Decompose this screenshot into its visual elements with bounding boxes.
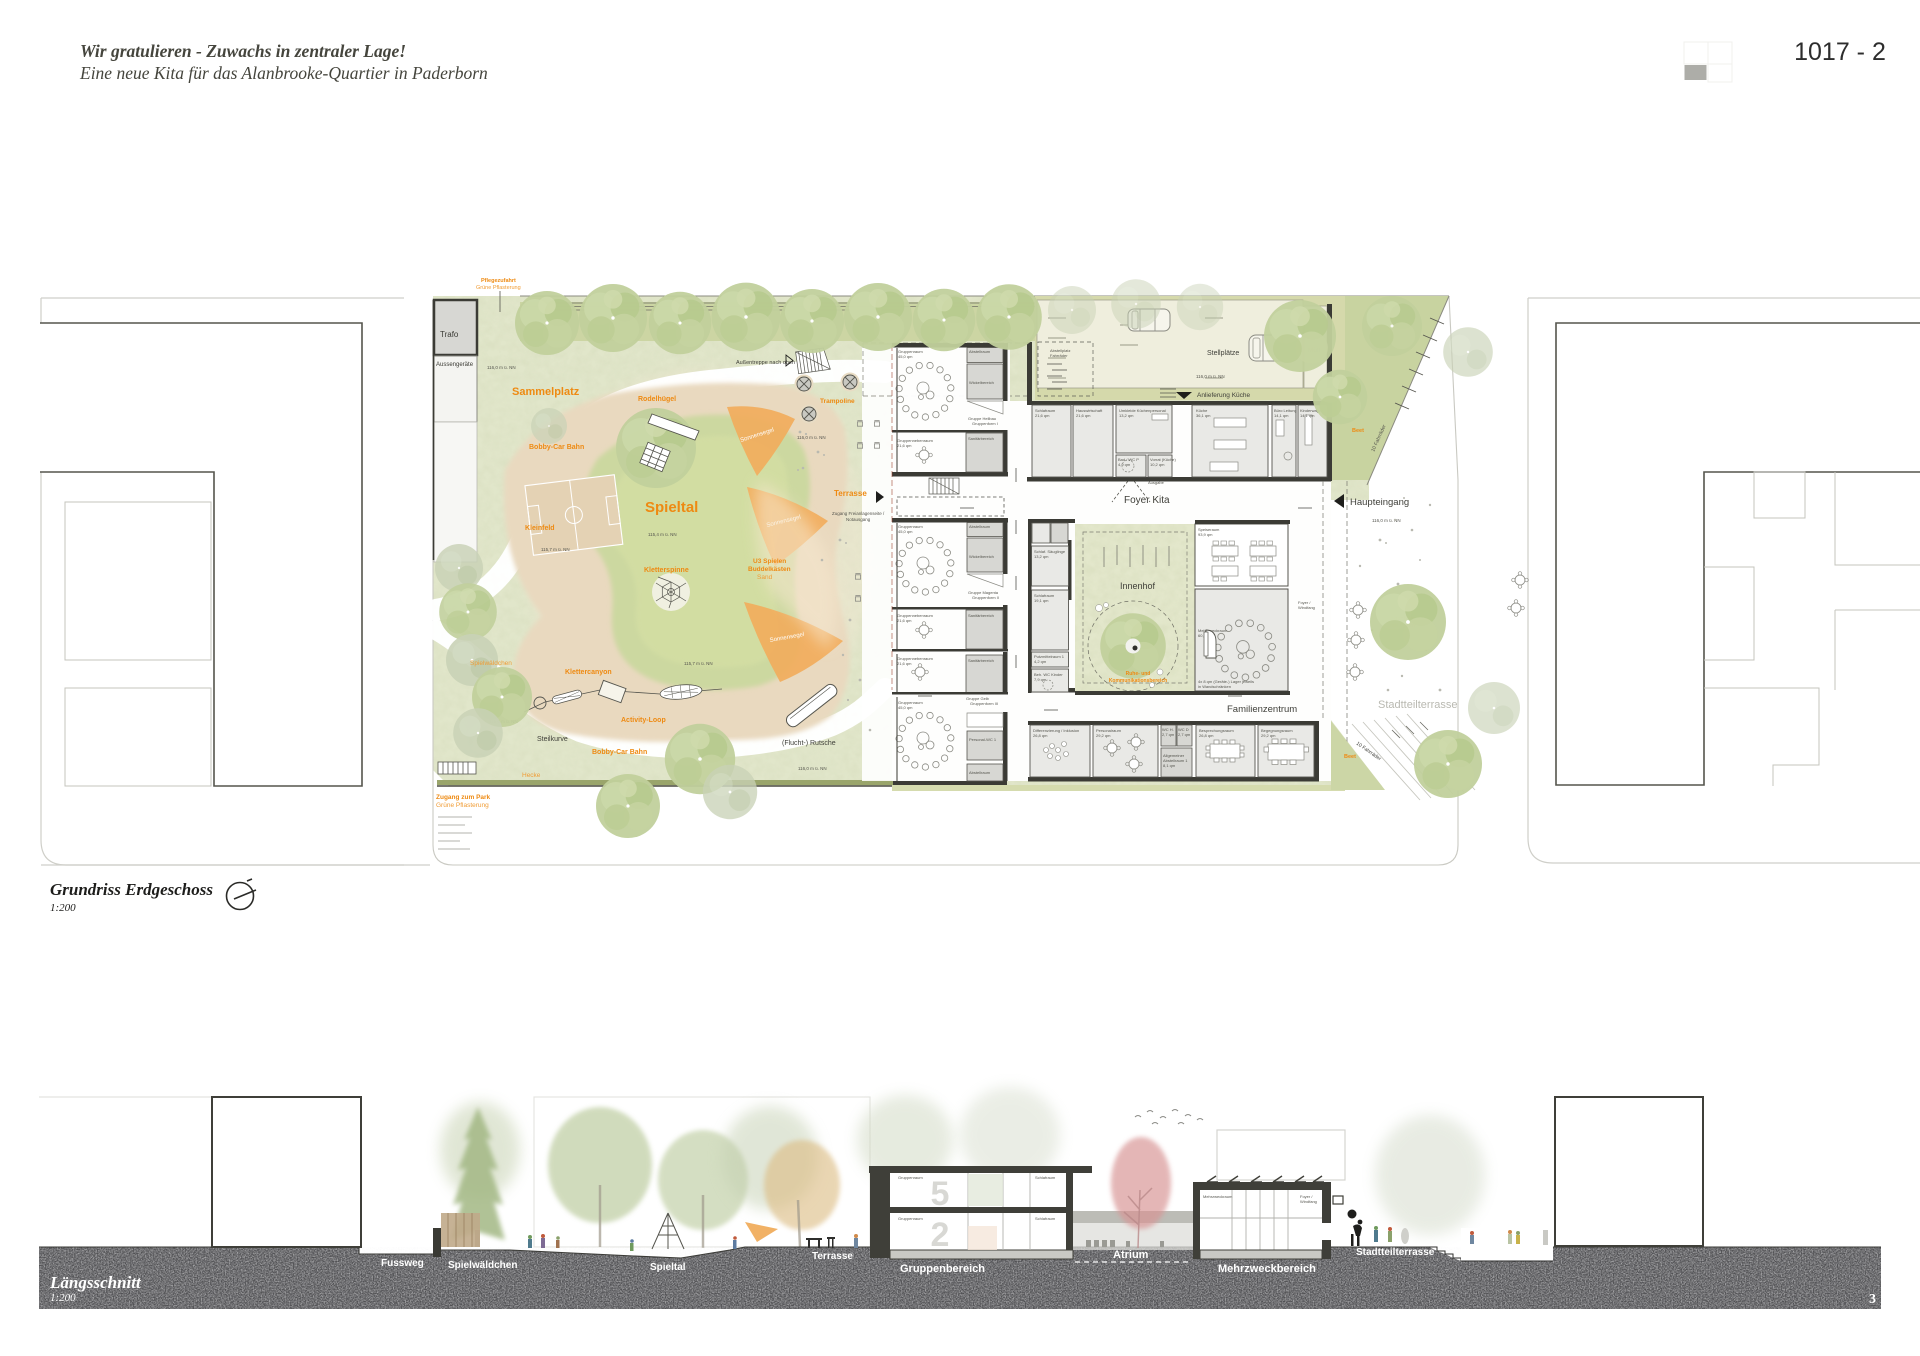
svg-text:Stadtteilterrasse: Stadtteilterrasse xyxy=(1378,699,1457,711)
svg-text:Aussengeräte: Aussengeräte xyxy=(436,362,474,368)
svg-text:Spielwäldchen: Spielwäldchen xyxy=(448,1260,517,1271)
svg-text:Abstellraum: Abstellraum xyxy=(969,524,991,529)
svg-text:Spielwäldchen: Spielwäldchen xyxy=(470,660,512,667)
svg-text:26,8 qm: 26,8 qm xyxy=(1033,733,1048,738)
svg-text:Gruppenform III: Gruppenform III xyxy=(970,701,998,706)
svg-text:21,6 qm: 21,6 qm xyxy=(897,661,912,666)
svg-text:4,2 qm: 4,2 qm xyxy=(1034,659,1047,664)
svg-text:Sanitärbereich: Sanitärbereich xyxy=(968,658,994,663)
svg-text:Steilkurve: Steilkurve xyxy=(537,736,568,743)
svg-text:Gruppenbereich: Gruppenbereich xyxy=(900,1263,985,1275)
svg-text:Kommunikationsbereich: Kommunikationsbereich xyxy=(1109,678,1167,684)
svg-text:21,6 qm: 21,6 qm xyxy=(1076,413,1091,418)
svg-text:Klettercanyon: Klettercanyon xyxy=(565,669,612,676)
svg-text:Zugang Freianlagenseite /: Zugang Freianlagenseite / xyxy=(832,511,885,516)
svg-text:Haupteingang: Haupteingang xyxy=(1350,497,1409,508)
svg-text:45,0 qm: 45,0 qm xyxy=(898,354,913,359)
svg-text:116,0 m ü. NN: 116,0 m ü. NN xyxy=(487,365,516,370)
svg-text:Abstellraum: Abstellraum xyxy=(969,770,991,775)
svg-text:115,7 m ü. NN: 115,7 m ü. NN xyxy=(684,661,713,666)
svg-text:Sammelplatz: Sammelplatz xyxy=(512,386,580,398)
svg-text:Gruppenform I: Gruppenform I xyxy=(972,421,998,426)
svg-text:Mehrzweckbereich: Mehrzweckbereich xyxy=(1218,1263,1316,1275)
svg-text:Außentreppe nach oben: Außentreppe nach oben xyxy=(736,360,795,366)
svg-text:Schlafraum: Schlafraum xyxy=(1035,1216,1056,1221)
svg-text:Schlafraum: Schlafraum xyxy=(1035,1175,1056,1180)
svg-text:3: 3 xyxy=(1869,1292,1876,1307)
svg-text:Familienzentrum: Familienzentrum xyxy=(1227,704,1297,715)
svg-text:Bobby-Car Bahn: Bobby-Car Bahn xyxy=(592,749,647,756)
svg-text:2: 2 xyxy=(931,1216,950,1254)
svg-text:115,7 m ü. NN: 115,7 m ü. NN xyxy=(541,547,570,552)
svg-text:Sanitärbereich: Sanitärbereich xyxy=(968,436,994,441)
svg-text:8,1 qm: 8,1 qm xyxy=(1163,763,1176,768)
svg-text:7,9 qm: 7,9 qm xyxy=(1034,677,1047,682)
svg-text:Fussweg: Fussweg xyxy=(381,1258,424,1269)
svg-text:10,2 qm: 10,2 qm xyxy=(1150,462,1165,467)
svg-text:1017 - 2: 1017 - 2 xyxy=(1794,38,1886,66)
svg-text:Längsschnitt: Längsschnitt xyxy=(49,1273,142,1292)
svg-text:36,1 qm: 36,1 qm xyxy=(1196,413,1211,418)
svg-text:Kletterspinne: Kletterspinne xyxy=(644,567,689,574)
svg-text:14,1 qm: 14,1 qm xyxy=(1300,413,1315,418)
svg-text:Terrasse: Terrasse xyxy=(812,1251,853,1262)
svg-text:Rodelhügel: Rodelhügel xyxy=(638,396,676,403)
svg-text:Anlieferung Küche: Anlieferung Küche xyxy=(1197,392,1251,399)
svg-text:1:200: 1:200 xyxy=(50,1292,76,1304)
svg-text:Ruhe- und: Ruhe- und xyxy=(1126,671,1151,677)
svg-text:U3 Spielen: U3 Spielen xyxy=(753,558,786,565)
svg-text:13,2 qm: 13,2 qm xyxy=(1034,554,1049,559)
svg-text:Zugang zum Park: Zugang zum Park xyxy=(436,794,491,801)
svg-text:Windfang: Windfang xyxy=(1300,1199,1317,1204)
svg-text:Trafo: Trafo xyxy=(440,330,459,339)
svg-text:Pflegezufahrt: Pflegezufahrt xyxy=(481,278,516,284)
svg-text:Grüne Pflasterung: Grüne Pflasterung xyxy=(436,802,489,809)
svg-text:Sand: Sand xyxy=(757,574,773,581)
svg-text:Buddelkästen: Buddelkästen xyxy=(748,566,791,573)
svg-text:Gruppenform II: Gruppenform II xyxy=(972,595,999,600)
svg-text:21,6 qm: 21,6 qm xyxy=(897,618,912,623)
svg-text:Hecke: Hecke xyxy=(522,772,541,779)
svg-text:21,6 qm: 21,6 qm xyxy=(897,443,912,448)
svg-text:Innenhof: Innenhof xyxy=(1120,581,1156,591)
svg-text:5: 5 xyxy=(931,1175,950,1213)
svg-text:Notausgang: Notausgang xyxy=(846,517,871,522)
svg-text:Foyer Kita: Foyer Kita xyxy=(1124,495,1170,506)
svg-text:Beet: Beet xyxy=(1352,428,1364,434)
svg-text:(Flucht-) Rutsche: (Flucht-) Rutsche xyxy=(782,740,836,747)
svg-text:2,7 qm: 2,7 qm xyxy=(1178,732,1191,737)
svg-text:Bobby-Car Bahn: Bobby-Car Bahn xyxy=(529,444,584,451)
svg-text:Spieltal: Spieltal xyxy=(650,1262,686,1273)
svg-text:Wickelbereich: Wickelbereich xyxy=(969,380,994,385)
svg-text:116,0 m ü. NN: 116,0 m ü. NN xyxy=(797,435,826,440)
svg-text:Stadtteilterrasse: Stadtteilterrasse xyxy=(1356,1247,1435,1258)
svg-text:116,0 m ü. NN: 116,0 m ü. NN xyxy=(1196,374,1225,379)
svg-text:Mehrzweckraum: Mehrzweckraum xyxy=(1203,1194,1233,1199)
svg-text:21,6 qm: 21,6 qm xyxy=(1035,413,1050,418)
svg-text:Stellplätze: Stellplätze xyxy=(1207,350,1239,357)
svg-text:Terrasse: Terrasse xyxy=(834,489,867,498)
svg-text:4,9 qm: 4,9 qm xyxy=(1118,462,1131,467)
svg-text:115,4 m ü. NN: 115,4 m ü. NN xyxy=(648,532,677,537)
svg-text:45,0 qm: 45,0 qm xyxy=(898,529,913,534)
svg-text:14,1 qm: 14,1 qm xyxy=(1274,413,1289,418)
svg-text:Atrium: Atrium xyxy=(1113,1249,1149,1261)
svg-text:19,1 qm: 19,1 qm xyxy=(1034,598,1049,603)
svg-text:26,8 qm: 26,8 qm xyxy=(1199,733,1214,738)
svg-text:Abstellraum: Abstellraum xyxy=(969,349,991,354)
svg-text:29,2 qm: 29,2 qm xyxy=(1261,733,1276,738)
svg-text:93,9 qm: 93,9 qm xyxy=(1198,532,1213,537)
svg-text:Activity-Loop: Activity-Loop xyxy=(621,717,666,724)
svg-text:Personal-WC 1: Personal-WC 1 xyxy=(969,737,997,742)
svg-text:Beet: Beet xyxy=(1344,754,1356,760)
svg-text:Windfang: Windfang xyxy=(1298,605,1315,610)
svg-text:Sanitärbereich: Sanitärbereich xyxy=(968,613,994,618)
svg-text:Trampoline: Trampoline xyxy=(820,398,855,405)
svg-text:13,2 qm: 13,2 qm xyxy=(1119,413,1134,418)
svg-text:Kleinfeld: Kleinfeld xyxy=(525,525,555,532)
svg-text:Spieltal: Spieltal xyxy=(645,499,698,516)
svg-text:Gruppenraum: Gruppenraum xyxy=(898,1216,923,1221)
svg-text:1:200: 1:200 xyxy=(50,902,76,914)
svg-text:116,0 m ü. NN: 116,0 m ü. NN xyxy=(1372,518,1401,523)
svg-text:Wir gratulieren - Zuwachs in z: Wir gratulieren - Zuwachs in zentraler L… xyxy=(80,41,406,61)
svg-text:Fahrräder: Fahrräder xyxy=(1050,353,1068,358)
svg-text:Wickelbereich: Wickelbereich xyxy=(969,554,994,559)
svg-text:in Wandschränken: in Wandschränken xyxy=(1198,684,1231,689)
svg-text:29,2 qm: 29,2 qm xyxy=(1096,733,1111,738)
svg-text:Grundriss Erdgeschoss: Grundriss Erdgeschoss xyxy=(50,880,213,899)
svg-text:116,0 m ü. NN: 116,0 m ü. NN xyxy=(798,766,827,771)
svg-text:Grüne Pflasterung: Grüne Pflasterung xyxy=(476,285,521,291)
svg-text:Gruppenraum: Gruppenraum xyxy=(898,1175,923,1180)
svg-text:45,0 qm: 45,0 qm xyxy=(898,705,913,710)
svg-text:2,7 qm: 2,7 qm xyxy=(1162,732,1175,737)
svg-text:Eine neue Kita für das Alanbro: Eine neue Kita für das Alanbrooke-Quarti… xyxy=(79,63,488,83)
